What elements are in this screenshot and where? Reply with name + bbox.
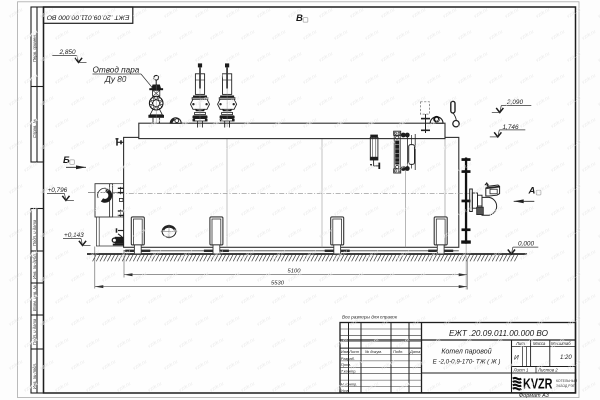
svg-text:Разраб.: Разраб. [341,356,355,361]
svg-text:Изм.Лист: Изм.Лист [341,349,360,354]
svg-text:№ докум.: № докум. [365,349,382,354]
svg-text:ЕЖТ .20.09.011.00.000 ВО: ЕЖТ .20.09.011.00.000 ВО [449,328,548,338]
svg-text:Формат А3: Формат А3 [519,393,549,399]
svg-text:Перв. примен.: Перв. примен. [32,34,37,62]
svg-text:0,000: 0,000 [518,241,534,248]
svg-text:Котел паровой: Котел паровой [441,348,491,356]
svg-text:Лист 1: Лист 1 [513,368,530,373]
svg-text:ЕЖТ .20.09.011.00.000 ВО: ЕЖТ .20.09.011.00.000 ВО [46,14,129,21]
svg-text:Дата: Дата [409,349,421,354]
svg-text:Подп. и дата: Подп. и дата [32,219,37,246]
svg-text:1:20: 1:20 [560,355,572,361]
svg-text:Е -2,0-0,9-170- ТЖ ( Ж ): Е -2,0-0,9-170- ТЖ ( Ж ) [433,359,501,366]
svg-text:Отвод пара: Отвод пара [93,66,140,75]
svg-text:5530: 5530 [271,280,285,286]
svg-text:Масса: Масса [533,341,546,346]
